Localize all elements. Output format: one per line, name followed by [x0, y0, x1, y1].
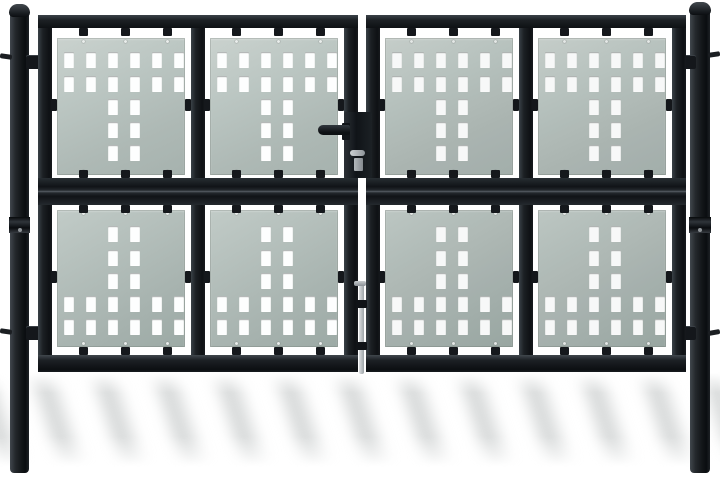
panel-hole	[130, 250, 140, 266]
panel-hole	[64, 76, 74, 92]
panel-side-clip	[666, 271, 672, 283]
panel-hole	[283, 250, 293, 266]
panel-clip-tab	[316, 28, 325, 36]
panel-hole	[261, 145, 271, 161]
panel-hole	[545, 296, 555, 312]
panel-clip-tab	[407, 28, 416, 36]
panel-hole	[436, 319, 446, 335]
panel-clip-tab	[232, 347, 241, 355]
panel-clip-tab	[560, 28, 569, 36]
screw-dot	[319, 342, 322, 345]
panel-hole	[283, 226, 293, 242]
panel-hole	[458, 122, 468, 138]
panel-hole	[611, 296, 621, 312]
panel-hole	[611, 99, 621, 115]
panel-hole	[64, 319, 74, 335]
panel-hole	[589, 226, 599, 242]
panel-hole	[108, 273, 118, 289]
screw-dot	[235, 342, 238, 345]
screw-dot	[452, 40, 455, 43]
panel-clip-tab	[449, 28, 458, 36]
ground-shadow	[0, 372, 720, 467]
panel-hole	[589, 99, 599, 115]
screw-dot	[452, 342, 455, 345]
panel-hole	[261, 319, 271, 335]
panel-hole	[86, 296, 96, 312]
panel-hole	[261, 99, 271, 115]
panel-clip-tab	[163, 205, 172, 213]
screw-dot	[410, 342, 413, 345]
panel-hole	[436, 76, 446, 92]
panel-hole	[217, 76, 227, 92]
panel-clip-tab	[121, 347, 130, 355]
screw-dot	[647, 342, 650, 345]
panel-hole	[458, 319, 468, 335]
screw-dot	[166, 40, 169, 43]
screw-dot	[82, 342, 85, 345]
panel-hole	[64, 296, 74, 312]
panel-hole	[458, 145, 468, 161]
panel-clip-tab	[602, 170, 611, 178]
panel-hole	[261, 250, 271, 266]
panel-clip-tab	[274, 205, 283, 213]
panel-hole	[283, 76, 293, 92]
panel-hole	[130, 52, 140, 68]
left-post-upper-flange	[0, 53, 12, 60]
panel-hole	[633, 52, 643, 68]
perforated-panel	[538, 38, 666, 175]
panel-clip-tab	[491, 205, 500, 213]
panel-clip-tab	[644, 170, 653, 178]
panel-clip-tab	[163, 28, 172, 36]
panel-clip-tab	[121, 205, 130, 213]
panel-hole	[130, 296, 140, 312]
panel-clip-tab	[491, 170, 500, 178]
panel-hole	[655, 296, 665, 312]
panel-hole	[152, 52, 162, 68]
panel-hole	[589, 76, 599, 92]
screw-dot	[605, 40, 608, 43]
panel-hole	[458, 250, 468, 266]
panel-hole	[108, 296, 118, 312]
panel-clip-tab	[602, 205, 611, 213]
left-post-lower-flange	[0, 328, 12, 335]
perforated-panel	[210, 38, 338, 175]
screw-dot	[563, 40, 566, 43]
panel-hole	[392, 52, 402, 68]
panel-hole	[108, 122, 118, 138]
panel-hole	[480, 319, 490, 335]
panel-hole	[589, 250, 599, 266]
perforated-panel	[57, 210, 185, 347]
leaf-bottom-rail	[366, 355, 686, 372]
panel-hole	[305, 319, 315, 335]
leaf-top-rail	[366, 15, 686, 28]
panel-hole	[633, 296, 643, 312]
panel-clip-tab	[79, 347, 88, 355]
panel-clip-tab	[163, 170, 172, 178]
panel-hole	[152, 296, 162, 312]
panel-hole	[611, 122, 621, 138]
panel-hole	[480, 52, 490, 68]
panel-side-clip	[338, 271, 344, 283]
panel-hole	[414, 296, 424, 312]
product-photo	[0, 0, 720, 480]
panel-hole	[589, 145, 599, 161]
panel-hole	[633, 319, 643, 335]
panel-hole	[174, 76, 184, 92]
lock-cylinder	[350, 150, 365, 156]
panel-clip-tab	[121, 28, 130, 36]
panel-hole	[261, 52, 271, 68]
panel-hole	[305, 76, 315, 92]
screw-dot	[277, 342, 280, 345]
panel-hole	[458, 273, 468, 289]
panel-hole	[174, 296, 184, 312]
panel-clip-tab	[274, 28, 283, 36]
panel-side-clip	[51, 99, 57, 111]
panel-hole	[436, 296, 446, 312]
panel-side-clip	[204, 99, 210, 111]
panel-hole	[217, 296, 227, 312]
screw-dot	[494, 342, 497, 345]
panel-side-clip	[532, 99, 538, 111]
panel-hole	[130, 273, 140, 289]
panel-hole	[567, 296, 577, 312]
panel-clip-tab	[232, 170, 241, 178]
panel-hole	[589, 122, 599, 138]
panel-hole	[545, 76, 555, 92]
panel-hole	[567, 76, 577, 92]
panel-hole	[327, 52, 337, 68]
panel-hole	[392, 76, 402, 92]
panel-hole	[480, 296, 490, 312]
panel-hole	[108, 52, 118, 68]
panel-clip-tab	[274, 170, 283, 178]
panel-hole	[567, 52, 577, 68]
panel-hole	[327, 296, 337, 312]
panel-hole	[611, 250, 621, 266]
panel-hole	[239, 319, 249, 335]
panel-hole	[436, 99, 446, 115]
panel-clip-tab	[316, 205, 325, 213]
leaf-top-rail	[38, 15, 358, 28]
panel-clip-tab	[232, 28, 241, 36]
panel-hole	[589, 52, 599, 68]
panel-clip-tab	[560, 205, 569, 213]
panel-clip-tab	[407, 347, 416, 355]
drop-bolt-guide-lower	[356, 342, 367, 350]
panel-hole	[261, 122, 271, 138]
panel-clip-tab	[449, 170, 458, 178]
panel-hole	[217, 52, 227, 68]
panel-clip-tab	[163, 347, 172, 355]
screw-dot	[277, 40, 280, 43]
screw-dot	[124, 342, 127, 345]
panel-hole	[414, 319, 424, 335]
panel-hole	[655, 319, 665, 335]
panel-hole	[130, 145, 140, 161]
panel-hole	[108, 76, 118, 92]
panel-clip-tab	[274, 347, 283, 355]
panel-hole	[108, 226, 118, 242]
panel-clip-tab	[316, 170, 325, 178]
right-post-upper-flange	[708, 51, 720, 58]
right-post-lower-flange	[708, 329, 720, 336]
gate-right-leaf	[366, 15, 686, 372]
right-post-bolt	[698, 228, 702, 232]
panel-hole	[545, 319, 555, 335]
panel-hole	[436, 52, 446, 68]
perforated-panel	[385, 210, 513, 347]
panel-hole	[611, 76, 621, 92]
panel-side-clip	[204, 271, 210, 283]
panel-clip-tab	[79, 170, 88, 178]
perforated-panel	[385, 38, 513, 175]
left-post-cap	[9, 4, 30, 17]
panel-hole	[217, 319, 227, 335]
panel-clip-tab	[602, 28, 611, 36]
panel-hole	[327, 319, 337, 335]
lock-keypiece	[354, 158, 363, 171]
panel-hole	[130, 99, 140, 115]
panel-hole	[392, 319, 402, 335]
leaf-bottom-rail	[38, 355, 358, 372]
screw-dot	[410, 40, 413, 43]
panel-clip-tab	[644, 205, 653, 213]
panel-hole	[283, 99, 293, 115]
panel-hole	[239, 76, 249, 92]
right-post-cap	[689, 2, 711, 15]
panel-hole	[86, 52, 96, 68]
panel-clip-tab	[449, 205, 458, 213]
screw-dot	[235, 40, 238, 43]
panel-clip-tab	[79, 205, 88, 213]
panel-side-clip	[513, 271, 519, 283]
panel-clip-tab	[407, 170, 416, 178]
panel-hole	[655, 52, 665, 68]
panel-hole	[436, 273, 446, 289]
perforated-panel	[57, 38, 185, 175]
panel-hole	[283, 52, 293, 68]
panel-hole	[261, 296, 271, 312]
panel-hole	[611, 319, 621, 335]
panel-clip-tab	[232, 205, 241, 213]
panel-hole	[283, 122, 293, 138]
panel-hole	[480, 76, 490, 92]
panel-side-clip	[532, 271, 538, 283]
panel-clip-tab	[644, 347, 653, 355]
panel-hole	[305, 52, 315, 68]
leaf-middle-rail	[366, 178, 686, 205]
panel-hole	[108, 250, 118, 266]
panel-side-clip	[513, 99, 519, 111]
screw-dot	[166, 342, 169, 345]
panel-side-clip	[666, 99, 672, 111]
panel-hole	[261, 226, 271, 242]
panel-hole	[545, 52, 555, 68]
panel-clip-tab	[316, 347, 325, 355]
panel-clip-tab	[449, 347, 458, 355]
panel-hole	[589, 296, 599, 312]
leaf-middle-rail	[38, 178, 358, 205]
panel-hole	[502, 319, 512, 335]
panel-side-clip	[185, 271, 191, 283]
panel-hole	[239, 52, 249, 68]
panel-hole	[283, 319, 293, 335]
panel-hole	[283, 145, 293, 161]
panel-hole	[261, 76, 271, 92]
panel-hole	[458, 99, 468, 115]
panel-hole	[502, 296, 512, 312]
panel-hole	[589, 273, 599, 289]
screw-dot	[82, 40, 85, 43]
panel-side-clip	[51, 271, 57, 283]
panel-hole	[261, 273, 271, 289]
panel-hole	[633, 76, 643, 92]
panel-hole	[458, 76, 468, 92]
panel-hole	[86, 76, 96, 92]
panel-hole	[436, 226, 446, 242]
panel-hole	[502, 76, 512, 92]
panel-clip-tab	[491, 28, 500, 36]
left-post-bolt	[18, 228, 22, 232]
screw-dot	[563, 342, 566, 345]
panel-hole	[567, 319, 577, 335]
panel-hole	[458, 296, 468, 312]
panel-clip-tab	[79, 28, 88, 36]
panel-hole	[130, 226, 140, 242]
left-fence-post	[10, 4, 29, 473]
panel-hole	[436, 122, 446, 138]
panel-hole	[611, 273, 621, 289]
panel-hole	[611, 226, 621, 242]
panel-side-clip	[185, 99, 191, 111]
screw-dot	[494, 40, 497, 43]
panel-hole	[589, 319, 599, 335]
right-fence-post	[690, 2, 710, 473]
perforated-panel	[210, 210, 338, 347]
panel-hole	[283, 273, 293, 289]
panel-hole	[436, 250, 446, 266]
panel-clip-tab	[491, 347, 500, 355]
panel-hole	[392, 296, 402, 312]
panel-hole	[239, 296, 249, 312]
panel-hole	[174, 319, 184, 335]
panel-hole	[458, 226, 468, 242]
panel-hole	[436, 145, 446, 161]
panel-hole	[64, 52, 74, 68]
drop-bolt-knob	[354, 281, 366, 286]
panel-clip-tab	[560, 170, 569, 178]
panel-hole	[130, 76, 140, 92]
latch-handle	[318, 125, 350, 135]
panel-clip-tab	[407, 205, 416, 213]
panel-hole	[655, 76, 665, 92]
panel-hole	[108, 145, 118, 161]
panel-clip-tab	[644, 28, 653, 36]
panel-clip-tab	[560, 347, 569, 355]
panel-hole	[108, 99, 118, 115]
screw-dot	[319, 40, 322, 43]
screw-dot	[647, 40, 650, 43]
screw-dot	[124, 40, 127, 43]
panel-clip-tab	[602, 347, 611, 355]
panel-hole	[283, 296, 293, 312]
panel-hole	[130, 122, 140, 138]
gate-left-leaf	[38, 15, 358, 372]
perforated-panel	[538, 210, 666, 347]
drop-bolt-rod	[359, 284, 364, 374]
panel-side-clip	[338, 99, 344, 111]
panel-hole	[414, 52, 424, 68]
panel-hole	[611, 145, 621, 161]
panel-side-clip	[379, 99, 385, 111]
panel-hole	[458, 52, 468, 68]
panel-hole	[108, 319, 118, 335]
panel-hole	[86, 319, 96, 335]
panel-hole	[502, 52, 512, 68]
panel-hole	[305, 296, 315, 312]
drop-bolt-guide-upper	[356, 300, 367, 308]
panel-clip-tab	[121, 170, 130, 178]
panel-side-clip	[379, 271, 385, 283]
panel-hole	[174, 52, 184, 68]
panel-hole	[152, 319, 162, 335]
panel-hole	[611, 52, 621, 68]
panel-hole	[130, 319, 140, 335]
screw-dot	[605, 342, 608, 345]
panel-hole	[414, 76, 424, 92]
panel-hole	[152, 76, 162, 92]
panel-hole	[327, 76, 337, 92]
